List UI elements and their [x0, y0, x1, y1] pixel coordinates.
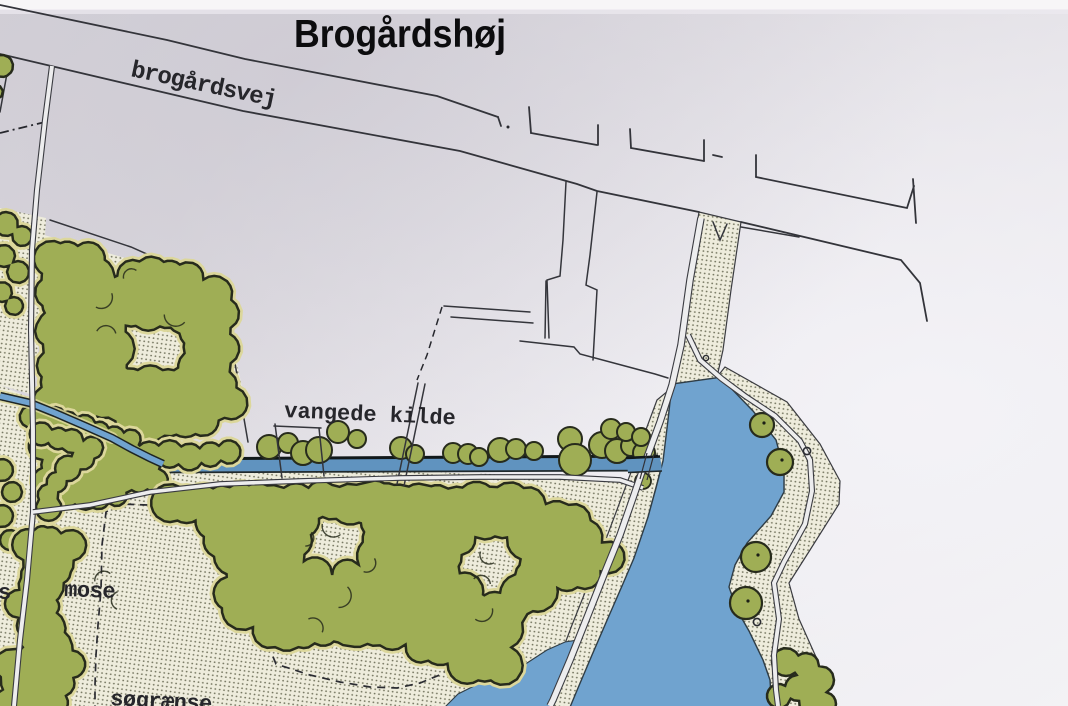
svg-text:Brogårdshøj: Brogårdshøj — [294, 13, 506, 56]
svg-text:mose: mose — [64, 578, 116, 605]
svg-text:s: s — [0, 581, 11, 606]
